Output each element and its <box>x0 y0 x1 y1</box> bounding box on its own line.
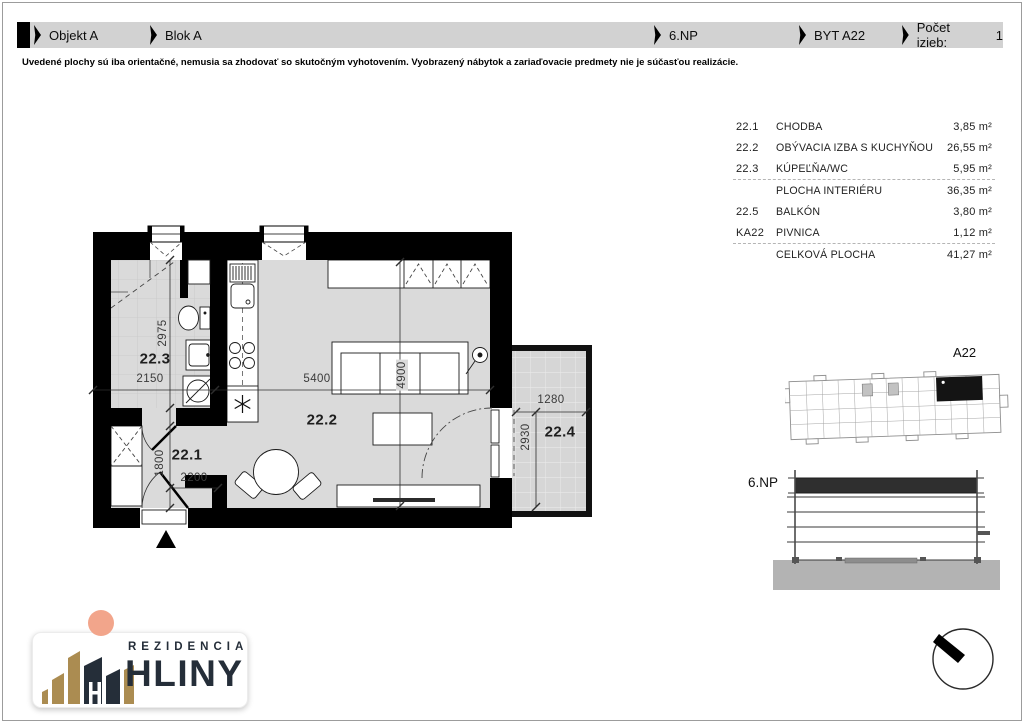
wardrobe <box>328 260 490 288</box>
header-segment-blok: Blok A <box>150 22 202 48</box>
room-code: KA22 <box>736 227 776 239</box>
table-row: 22.1 CHODBA 3,85 m² <box>733 116 995 137</box>
fridge-icon <box>227 386 258 422</box>
room-area: 1,12 m² <box>953 227 992 239</box>
floor-plan: 22.3 22.1 22.2 22.4 2975 2150 5400 4900 … <box>80 222 600 554</box>
table-row: 22.2 OBÝVACIA IZBA S KUCHYŇOU 26,55 m² <box>733 137 995 158</box>
sun-dot-icon <box>88 610 114 636</box>
toilet-icon <box>179 306 211 330</box>
room-area: 5,95 m² <box>953 163 992 175</box>
floor-plan-sheet: Objekt A Blok A 6.NP BYT A22 Počet izieb… <box>0 0 1024 723</box>
header-segment-floor: 6.NP <box>654 22 698 48</box>
room-name: PLOCHA INTERIÉRU <box>776 185 947 197</box>
arrow-icon <box>34 25 41 45</box>
table-row-subtotal: PLOCHA INTERIÉRU 36,35 m² <box>733 179 995 201</box>
keyplan-drawing <box>785 345 1013 445</box>
header-segment-unit: BYT A22 <box>799 22 865 48</box>
room-label-hall: 22.1 <box>172 447 203 464</box>
section-drawing <box>740 465 1020 600</box>
room-code: 22.5 <box>736 206 776 218</box>
table-row-total: CELKOVÁ PLOCHA 41,27 m² <box>733 243 995 265</box>
tv-cabinet <box>337 485 480 507</box>
hall-closet <box>111 426 142 506</box>
header-rooms-label: Počet izieb: <box>917 20 982 50</box>
section-diagram: 6.NP <box>740 465 1020 600</box>
header-bar: Objekt A Blok A 6.NP BYT A22 Počet izieb… <box>17 22 1003 48</box>
keyplan: A22 <box>785 345 1013 445</box>
header-start-block <box>17 22 30 48</box>
keyplan-unit-highlight <box>936 376 983 402</box>
room-code: 22.3 <box>736 163 776 175</box>
dim-bath-depth: 2975 <box>157 319 169 346</box>
table-row: 22.3 KÚPEĽŇA/WC 5,95 m² <box>733 158 995 179</box>
room-name: OBÝVACIA IZBA S KUCHYŇOU <box>776 142 947 154</box>
room-code: 22.1 <box>736 121 776 133</box>
room-area: 41,27 m² <box>947 249 992 261</box>
room-name: CELKOVÁ PLOCHA <box>776 249 947 261</box>
arrow-icon <box>150 25 157 45</box>
dim-living-width: 5400 <box>303 373 330 385</box>
keyplan-core <box>862 384 872 396</box>
disclaimer-text: Uvedené plochy sú iba orientačné, nemusi… <box>22 57 738 68</box>
room-area: 26,55 m² <box>947 142 992 154</box>
dim-hall-depth: 1800 <box>154 449 166 476</box>
washing-machine-icon <box>183 376 213 406</box>
table-row: 22.5 BALKÓN 3,80 m² <box>733 201 995 222</box>
arrow-icon <box>902 25 909 45</box>
arrow-icon <box>799 25 806 45</box>
brand-line2: HLINY <box>125 653 244 695</box>
room-name: CHODBA <box>776 121 953 133</box>
room-code: 22.2 <box>736 142 776 154</box>
section-floor-label: 6.NP <box>748 475 778 490</box>
dim-bath-width: 2150 <box>136 373 163 385</box>
window-icon <box>148 226 184 256</box>
header-segment-objekt: Objekt A <box>34 22 98 48</box>
entrance-arrow-icon <box>156 530 176 548</box>
header-rooms-value: 1 <box>996 28 1003 43</box>
room-label-bath: 22.3 <box>140 351 171 368</box>
section-highlighted-floor <box>795 478 977 493</box>
room-area: 3,80 m² <box>953 206 992 218</box>
header-blok-label: Blok A <box>165 28 202 43</box>
dim-balcony-width: 1280 <box>537 394 564 406</box>
dim-hall-width: 2200 <box>180 472 207 484</box>
header-floor-label: 6.NP <box>669 28 698 43</box>
bath-sink-icon <box>186 340 212 370</box>
shaft-niche <box>188 260 210 284</box>
brand-logo: REZIDENCIA HLINY <box>28 608 260 714</box>
coffee-table <box>373 413 432 445</box>
dim-balcony-depth: 2930 <box>520 423 532 450</box>
room-area: 36,35 m² <box>947 185 992 197</box>
keyplan-unit-label: A22 <box>953 345 976 360</box>
window-icon <box>260 226 308 256</box>
table-row: KA22 PIVNICA 1,12 m² <box>733 222 995 243</box>
ground <box>773 560 1000 590</box>
room-label-living: 22.2 <box>307 412 338 429</box>
area-table: 22.1 CHODBA 3,85 m² 22.2 OBÝVACIA IZBA S… <box>733 116 995 265</box>
room-label-balcony: 22.4 <box>545 424 576 441</box>
floor-plan-drawing <box>80 222 600 554</box>
keyplan-core <box>888 383 898 395</box>
dim-living-depth: 4900 <box>396 359 408 390</box>
room-name: BALKÓN <box>776 206 953 218</box>
room-name: KÚPEĽŇA/WC <box>776 163 953 175</box>
kitchen-sink-icon <box>230 264 255 308</box>
arrow-icon <box>654 25 661 45</box>
compass-icon <box>925 626 1005 698</box>
header-segment-rooms: Počet izieb: 1 <box>902 22 1003 48</box>
header-unit-label: BYT A22 <box>814 28 865 43</box>
brand-line1: REZIDENCIA <box>128 641 248 653</box>
header-objekt-label: Objekt A <box>49 28 98 43</box>
section-footings <box>792 531 990 563</box>
room-area: 3,85 m² <box>953 121 992 133</box>
room-name: PIVNICA <box>776 227 953 239</box>
